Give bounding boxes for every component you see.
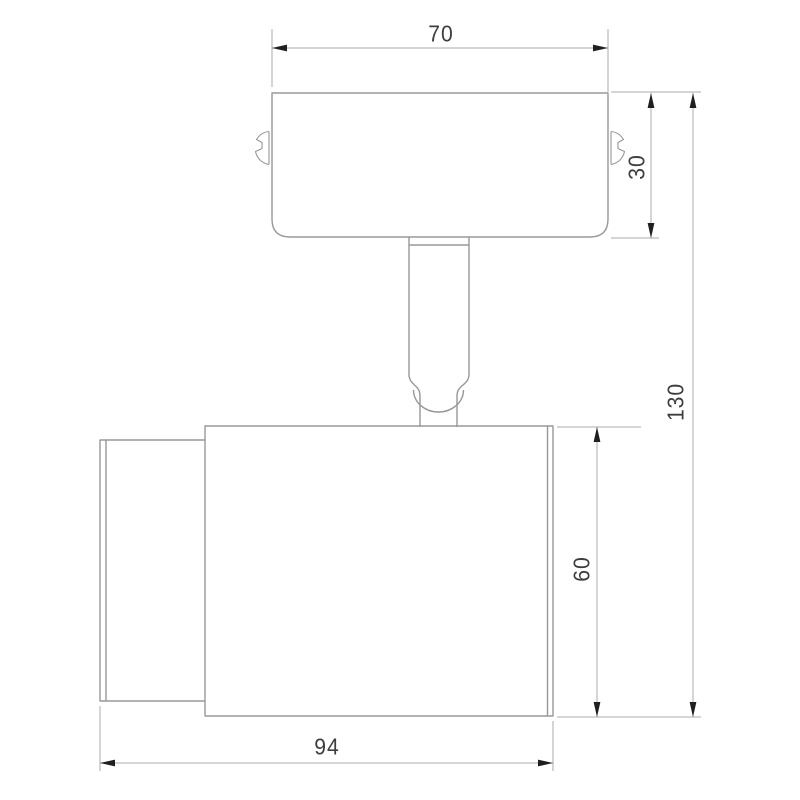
lamp-body-outline [205, 426, 553, 716]
arrowhead-up-icon [648, 93, 655, 108]
screw-right-head-icon [611, 132, 625, 165]
front-barrel [100, 440, 205, 701]
arrowhead-right-icon [593, 45, 608, 52]
dimension-130 [690, 93, 697, 717]
arrowhead-left-icon [272, 45, 287, 52]
arrowhead-right-icon [538, 760, 553, 767]
arrowhead-down-icon [648, 223, 655, 238]
stem [409, 237, 469, 427]
dim-label-body-height: 60 [571, 556, 594, 581]
arrowhead-left-icon [100, 760, 115, 767]
dim-label-plate-height: 30 [626, 154, 649, 179]
screw-right [611, 132, 625, 165]
stem-ball-joint-arc [413, 390, 463, 412]
drawing-canvas: 70 30 130 60 94 [0, 0, 800, 800]
arrowhead-up-icon [690, 93, 697, 108]
lamp-body [205, 426, 553, 716]
dim-label-bottom-width: 94 [314, 736, 339, 759]
arrowhead-up-icon [594, 427, 601, 442]
fixture-outline-group [100, 93, 625, 716]
mounting-plate-outline [272, 93, 608, 237]
arrowhead-down-icon [594, 702, 601, 717]
dim-label-total-height: 130 [665, 383, 688, 421]
screw-left-head-icon [256, 132, 270, 165]
front-barrel-outline [100, 440, 205, 701]
arrowhead-down-icon [690, 702, 697, 717]
stem-right-edge [457, 237, 469, 427]
screw-left [256, 132, 270, 165]
stem-left-edge [409, 237, 420, 427]
dim-label-top-width: 70 [428, 23, 453, 46]
